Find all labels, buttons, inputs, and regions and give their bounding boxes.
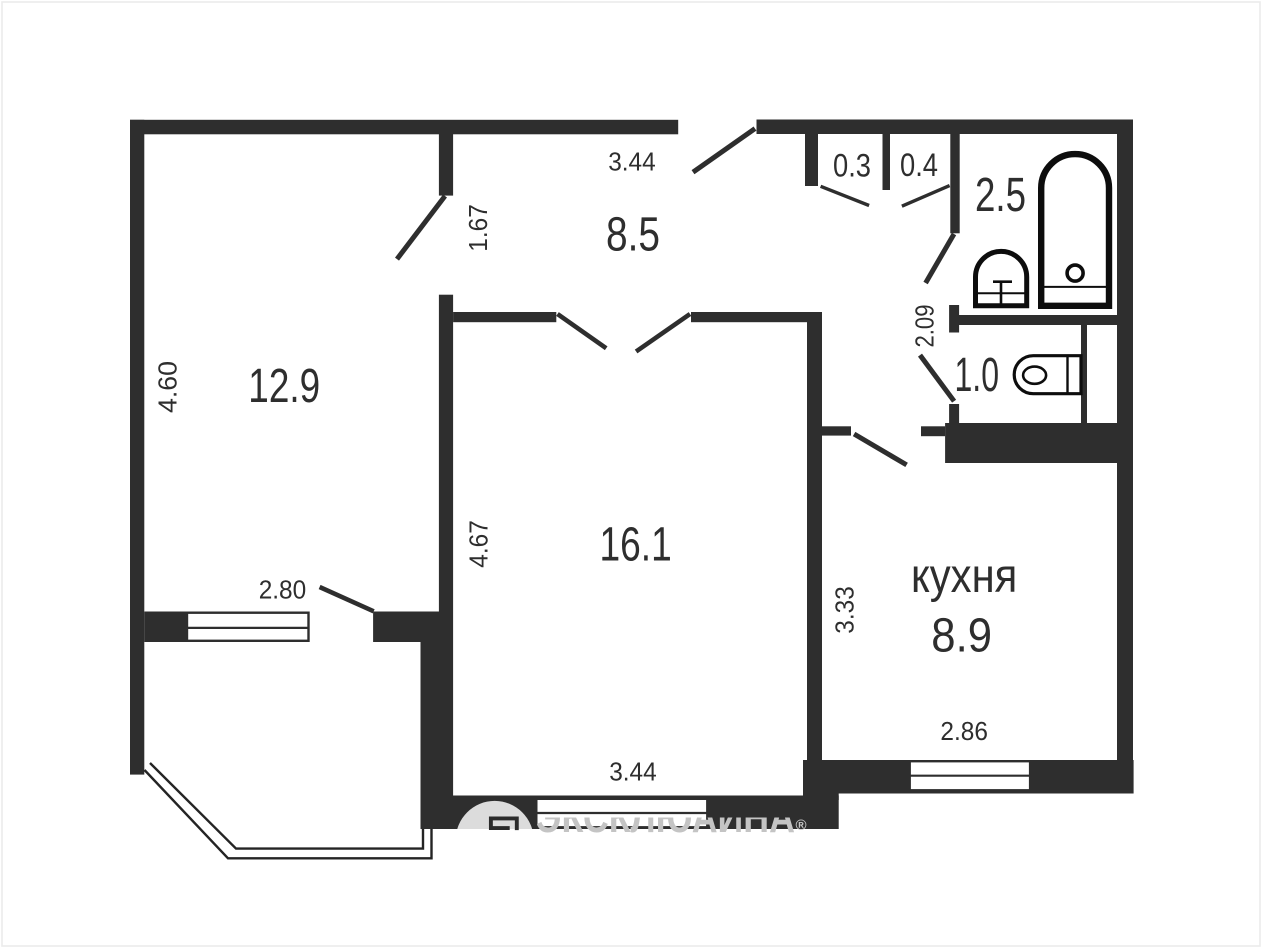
svg-text:4.60: 4.60 [153,361,183,413]
svg-text:3.44: 3.44 [609,757,657,787]
svg-text:2.5: 2.5 [975,169,1026,222]
svg-text:2.09: 2.09 [910,305,940,348]
svg-text:3.44: 3.44 [608,147,656,177]
svg-text:кухня: кухня [911,550,1017,603]
svg-text:®: ® [795,817,806,834]
svg-text:2.80: 2.80 [259,575,307,605]
svg-text:16.1: 16.1 [600,519,672,572]
svg-text:3.33: 3.33 [830,586,860,634]
svg-text:1.67: 1.67 [463,204,493,252]
svg-text:0.3: 0.3 [833,147,871,183]
svg-text:12.9: 12.9 [248,360,320,413]
svg-text:8.9: 8.9 [931,610,992,663]
svg-text:1.0: 1.0 [955,349,1000,402]
svg-text:4.67: 4.67 [464,520,494,568]
svg-text:2.86: 2.86 [940,716,988,746]
svg-text:8.5: 8.5 [606,209,660,262]
svg-text:0.4: 0.4 [900,147,938,183]
